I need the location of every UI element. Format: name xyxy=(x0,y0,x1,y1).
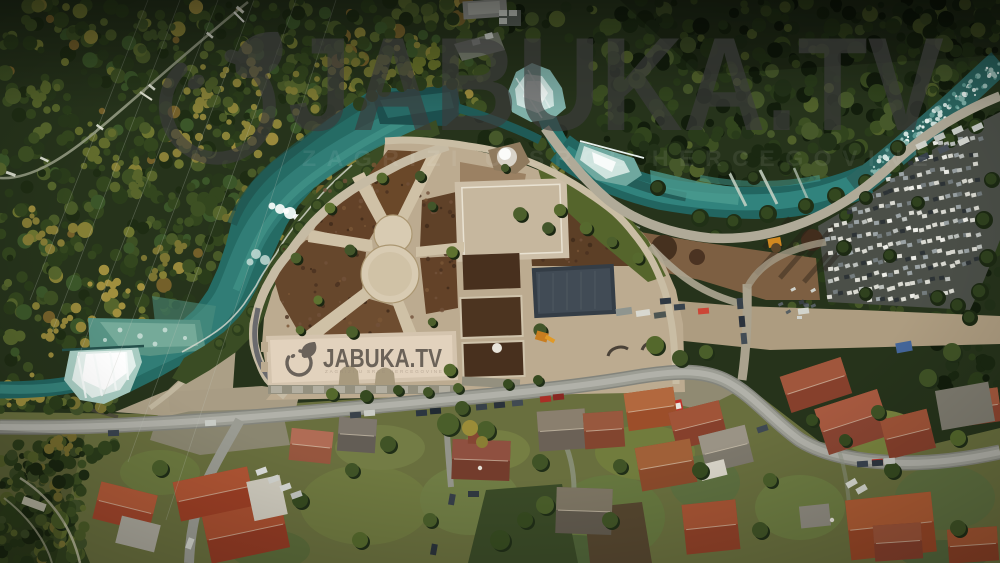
svg-text:JABUKA.TV: JABUKA.TV xyxy=(288,11,944,159)
svg-text:ZAGRIZI U SRCE HERCEGOVINE: ZAGRIZI U SRCE HERCEGOVINE xyxy=(302,146,938,171)
svg-text:ZAGRIZI U SRCE HERCEGOVINE: ZAGRIZI U SRCE HERCEGOVINE xyxy=(325,369,444,374)
